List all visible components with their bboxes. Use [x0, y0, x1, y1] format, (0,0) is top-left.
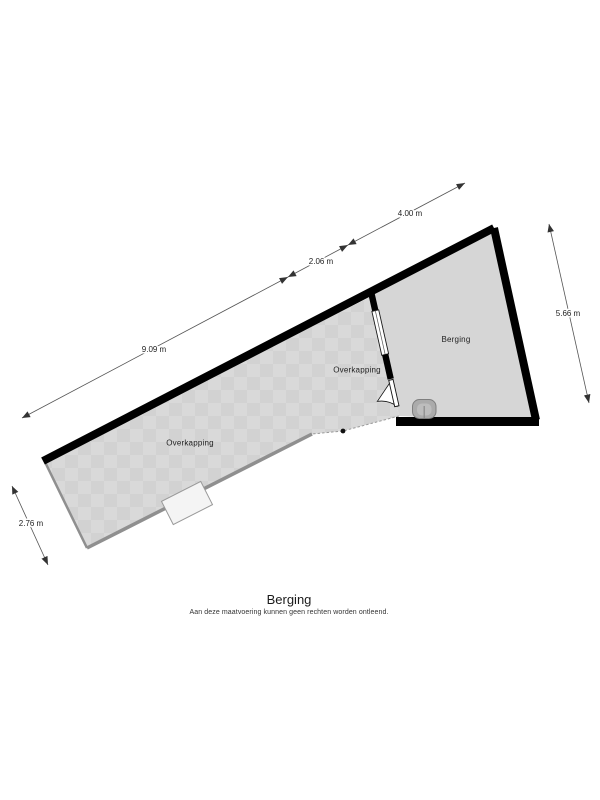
floorplan-page: Berging Overkapping Overkapping 9.09 m 2… [0, 0, 600, 800]
dimension-label-5-66: 5.66 m [556, 309, 581, 318]
dimension-label-9-09: 9.09 m [142, 345, 167, 354]
room-label-berging: Berging [442, 335, 471, 344]
plan-title: Berging [0, 592, 578, 607]
dimension-label-2-06: 2.06 m [309, 257, 334, 266]
plan-disclaimer: Aan deze maatvoering kunnen geen rechten… [0, 609, 578, 616]
floorplan-drawing: Berging Overkapping Overkapping 9.09 m 2… [0, 0, 600, 800]
dimension-label-2-76: 2.76 m [19, 519, 44, 528]
toilet-icon [413, 400, 437, 419]
room-label-overkapping-right: Overkapping [333, 366, 381, 375]
overkapping-floor [45, 296, 399, 548]
dimension-label-4-00: 4.00 m [398, 209, 423, 218]
boundary-point-marker [341, 429, 346, 434]
footer-block: Berging Aan deze maatvoering kunnen geen… [0, 592, 578, 616]
room-label-overkapping-left: Overkapping [166, 439, 214, 448]
